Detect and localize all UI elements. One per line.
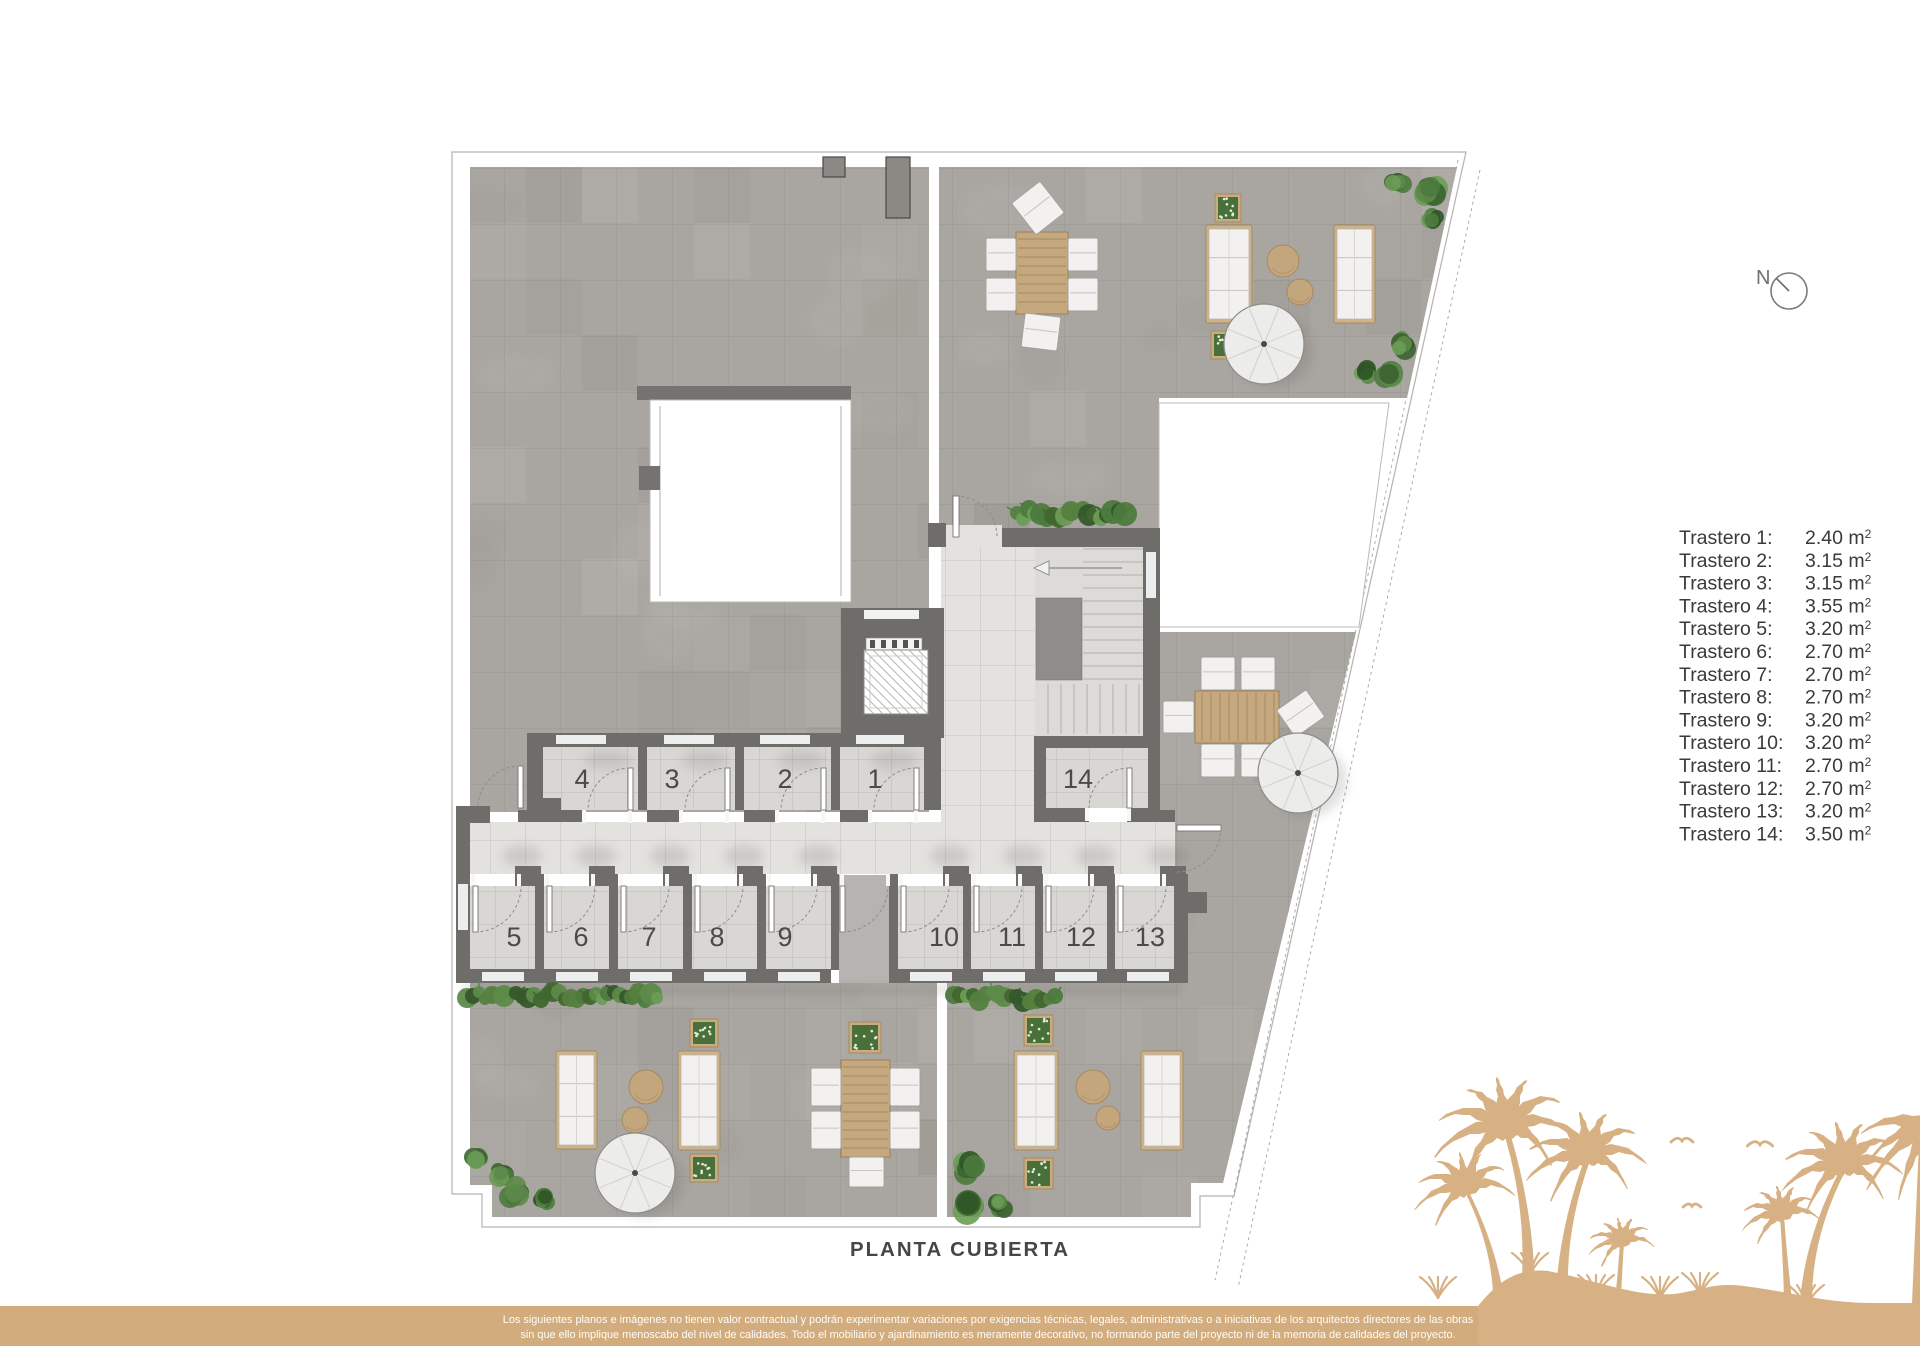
svg-text:11: 11 — [998, 922, 1026, 952]
svg-text:13: 13 — [1135, 922, 1165, 952]
svg-text:Trastero 1:: Trastero 1: — [1679, 527, 1773, 549]
svg-text:3.55 m2: 3.55 m2 — [1805, 595, 1872, 617]
svg-text:Trastero 5:: Trastero 5: — [1679, 618, 1773, 640]
svg-text:2: 2 — [777, 764, 792, 794]
svg-text:3.20 m2: 3.20 m2 — [1805, 801, 1872, 823]
svg-text:Trastero 14:: Trastero 14: — [1679, 823, 1783, 845]
svg-text:9: 9 — [777, 922, 792, 952]
svg-text:Trastero 11:: Trastero 11: — [1679, 755, 1782, 777]
svg-text:2.40 m2: 2.40 m2 — [1805, 527, 1872, 549]
svg-text:Los siguientes planos e imágen: Los siguientes planos e imágenes no tien… — [503, 1314, 1474, 1326]
svg-text:7: 7 — [641, 922, 656, 952]
svg-text:2.70 m2: 2.70 m2 — [1805, 641, 1872, 663]
svg-text:Trastero 9:: Trastero 9: — [1679, 709, 1773, 731]
svg-text:Trastero 10:: Trastero 10: — [1679, 732, 1783, 754]
svg-text:Trastero 2:: Trastero 2: — [1679, 550, 1773, 572]
svg-text:Trastero 12:: Trastero 12: — [1679, 778, 1783, 800]
svg-text:5: 5 — [506, 922, 521, 952]
svg-text:3.20 m2: 3.20 m2 — [1805, 709, 1872, 731]
svg-text:3.15 m2: 3.15 m2 — [1805, 573, 1872, 595]
svg-text:14: 14 — [1063, 764, 1093, 794]
svg-text:1: 1 — [867, 764, 882, 794]
svg-text:2.70 m2: 2.70 m2 — [1805, 778, 1872, 800]
svg-text:10: 10 — [929, 922, 959, 952]
svg-text:3.15 m2: 3.15 m2 — [1805, 550, 1872, 572]
svg-text:N: N — [1756, 267, 1770, 289]
svg-text:PLANTA CUBIERTA: PLANTA CUBIERTA — [850, 1239, 1070, 1261]
svg-text:6: 6 — [573, 922, 588, 952]
svg-text:Trastero 3:: Trastero 3: — [1679, 573, 1773, 595]
svg-text:2.70 m2: 2.70 m2 — [1805, 755, 1872, 777]
svg-text:Trastero 6:: Trastero 6: — [1679, 641, 1773, 663]
svg-text:4: 4 — [574, 764, 589, 794]
svg-text:sin que ello implique menoscab: sin que ello implique menoscabo del nive… — [520, 1329, 1455, 1341]
svg-text:3.20 m2: 3.20 m2 — [1805, 732, 1872, 754]
svg-text:Trastero 8:: Trastero 8: — [1679, 687, 1773, 709]
svg-text:2.70 m2: 2.70 m2 — [1805, 687, 1872, 709]
svg-text:12: 12 — [1066, 922, 1096, 952]
svg-text:Trastero 13:: Trastero 13: — [1679, 801, 1783, 823]
svg-text:Trastero 4:: Trastero 4: — [1679, 595, 1773, 617]
svg-text:2.70 m2: 2.70 m2 — [1805, 664, 1872, 686]
svg-text:8: 8 — [709, 922, 724, 952]
svg-text:3: 3 — [664, 764, 679, 794]
svg-text:3.20 m2: 3.20 m2 — [1805, 618, 1872, 640]
svg-text:Trastero 7:: Trastero 7: — [1679, 664, 1773, 686]
svg-text:3.50 m2: 3.50 m2 — [1805, 823, 1872, 845]
